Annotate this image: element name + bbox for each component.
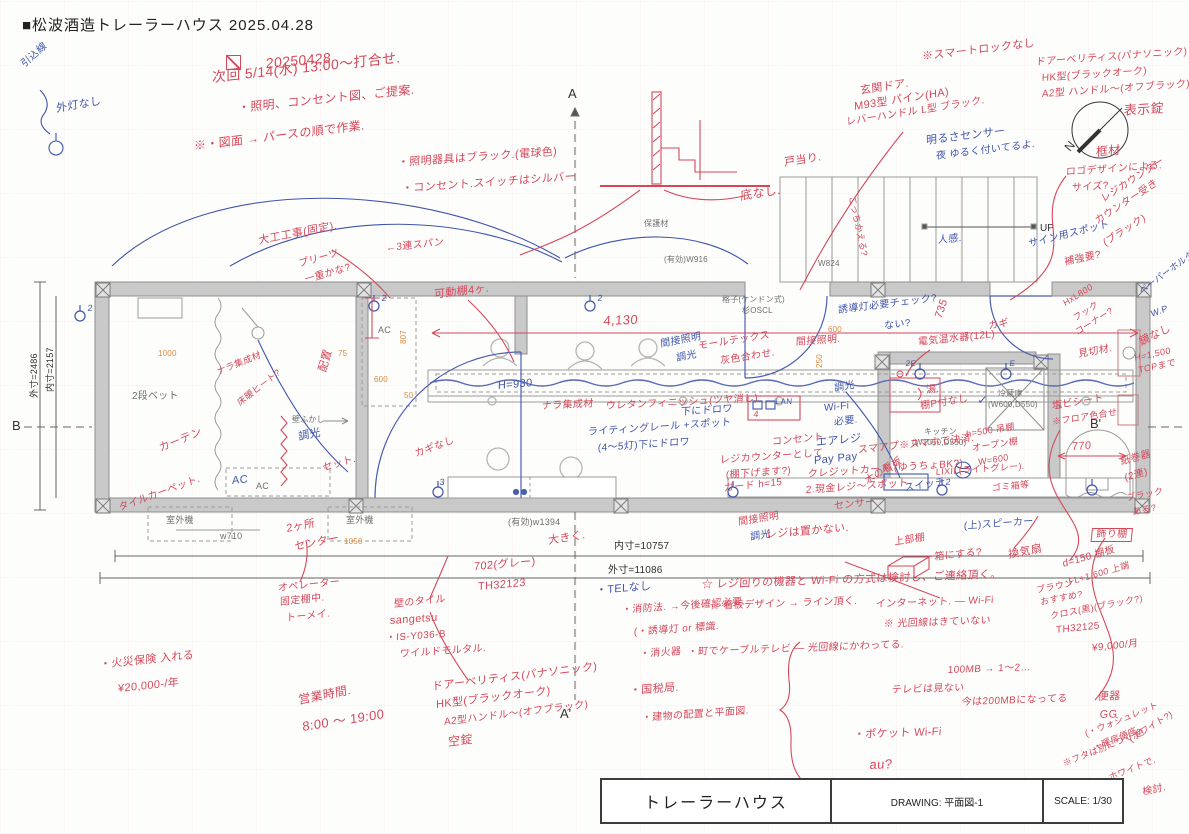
printed-label: 75 bbox=[338, 350, 347, 358]
printed-label: (有効)W916 bbox=[664, 256, 708, 264]
printed-label: 2段ベット bbox=[132, 392, 179, 402]
printed-label: 壁ふかし bbox=[292, 416, 325, 424]
handwritten-note: 人感. bbox=[938, 234, 962, 246]
north-label: N bbox=[1062, 138, 1078, 154]
handwritten-note: 空錠 bbox=[448, 733, 473, 748]
printed-label: w710 bbox=[220, 532, 242, 541]
handwritten-note: 2 bbox=[945, 478, 951, 487]
cabinets bbox=[448, 477, 1133, 498]
handwritten-note: LAN bbox=[775, 398, 793, 406]
printed-label: 保護材 bbox=[644, 220, 669, 228]
printed-label: AC bbox=[256, 482, 269, 491]
printed-label: 807 bbox=[400, 330, 408, 344]
handwritten-note: 4,130 bbox=[603, 313, 638, 327]
printed-label: 外寸=2486 bbox=[30, 353, 39, 398]
handwritten-note: 表示錠 bbox=[1124, 101, 1165, 117]
title-block-scale: SCALE: 1/30 bbox=[1042, 780, 1122, 822]
printed-label: 1050 bbox=[344, 538, 363, 546]
handwritten-note: 框材 bbox=[1096, 144, 1121, 158]
printed-label: 内寸=10757 bbox=[614, 542, 669, 552]
handwritten-note: 2 bbox=[381, 294, 387, 303]
handwritten-note: au? bbox=[869, 757, 893, 771]
printed-label: 外寸=11086 bbox=[608, 566, 663, 576]
handwritten-note: E bbox=[1009, 360, 1016, 368]
section-marker-a: A bbox=[568, 86, 577, 101]
printed-label: AC bbox=[378, 326, 391, 335]
printed-label: 600 bbox=[828, 326, 842, 334]
printed-label: 室外機 bbox=[346, 516, 374, 525]
printed-label: 格子(ケンドン式) bbox=[722, 296, 785, 304]
printed-label: 600 bbox=[374, 376, 388, 384]
printed-label: 250 bbox=[816, 354, 824, 368]
handwritten-note: ✓ bbox=[977, 394, 989, 406]
printed-label: 内寸=2157 bbox=[46, 347, 55, 392]
handwritten-note: 2 bbox=[87, 304, 93, 313]
title-block-project: トレーラーハウス bbox=[602, 780, 830, 822]
floor-plan-drawing: UP bbox=[0, 0, 1189, 834]
handwritten-note: 770 bbox=[1072, 441, 1092, 453]
handwritten-note: 湯. bbox=[926, 385, 940, 396]
handwritten-note: 2 bbox=[597, 294, 603, 303]
title-block-drawing: DRAWING: 平面図-1 bbox=[830, 780, 1042, 822]
section-marker-b: B bbox=[12, 418, 21, 433]
printed-label: (W600,D550) bbox=[988, 401, 1038, 409]
handwritten-note: 4 bbox=[753, 410, 759, 419]
printed-label: 杉OSCL bbox=[742, 307, 773, 315]
handwritten-note: 飾り棚 bbox=[1091, 528, 1134, 542]
printed-label: W824 bbox=[818, 260, 840, 268]
printed-label: 室外機 bbox=[166, 516, 194, 525]
drawing-sheet: ■松波酒造トレーラーハウス 2025.04.28 UP bbox=[0, 0, 1189, 834]
handwritten-note: 便器 bbox=[1097, 691, 1121, 703]
printed-label: 1000 bbox=[158, 350, 177, 358]
printed-label: (有効)w1394 bbox=[508, 518, 560, 527]
printed-label: 50 bbox=[404, 392, 413, 400]
handwritten-note: AC bbox=[232, 474, 248, 487]
printed-label: 冷蔵庫 bbox=[998, 390, 1023, 398]
handwritten-note: 3 bbox=[439, 478, 445, 487]
handwritten-note: 2E bbox=[905, 360, 916, 368]
title-block: トレーラーハウス DRAWING: 平面図-1 SCALE: 1/30 bbox=[600, 778, 1124, 824]
